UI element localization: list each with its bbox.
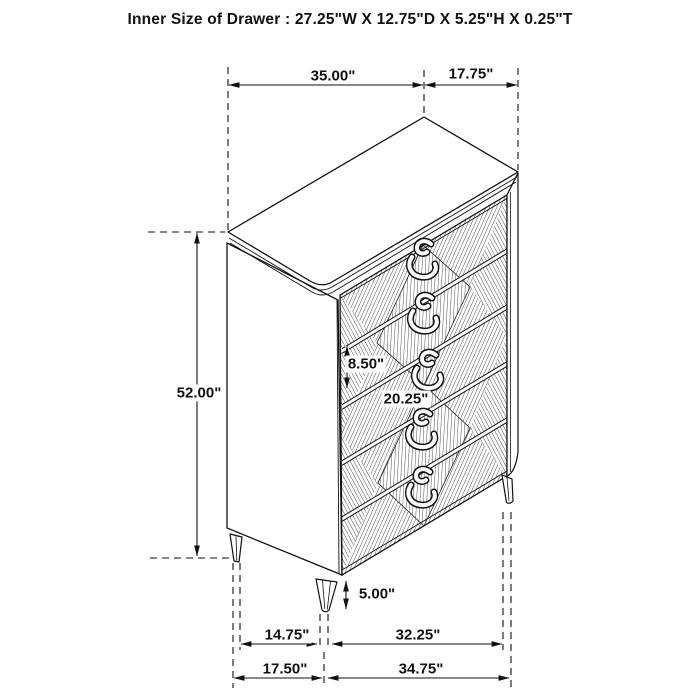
back-left-leg [230, 534, 242, 562]
dim-label-inner-width: 32.25" [394, 627, 443, 644]
right-edge-stile [507, 173, 518, 476]
left-side-panel [227, 243, 342, 575]
right-leg [502, 475, 513, 503]
front-left-leg [316, 579, 337, 612]
dim-label-outer-depth: 17.50" [261, 661, 310, 678]
dim-label-top-width: 35.00" [309, 68, 358, 85]
chest-dimension-diagram [0, 0, 700, 700]
dim-label-top-depth: 17.75" [447, 66, 496, 83]
dim-label-inner-depth: 14.75" [263, 627, 312, 644]
product-dimension-page: Inner Size of Drawer : 27.25"W X 12.75"D… [0, 0, 700, 700]
dim-label-drawer-height: 8.50" [346, 356, 386, 373]
dim-label-leg-height: 5.00" [357, 586, 397, 603]
dim-label-outer-width: 34.75" [397, 661, 446, 678]
dim-label-height: 52.00" [175, 385, 224, 402]
dim-label-drawer-width: 20.25" [382, 391, 431, 408]
